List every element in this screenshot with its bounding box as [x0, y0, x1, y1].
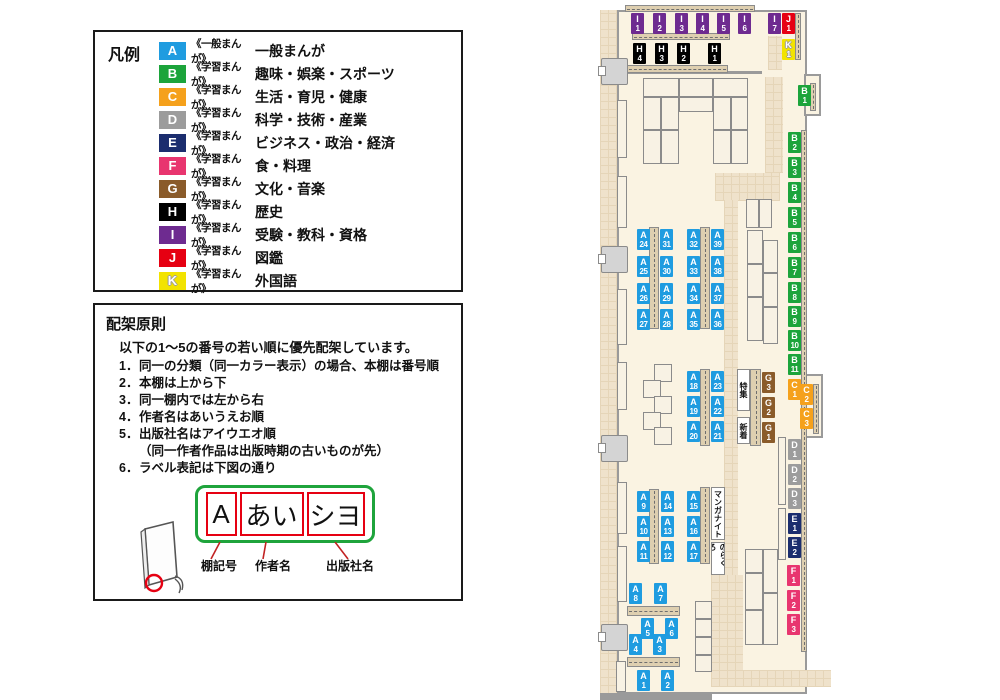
shelf-label-A10: A10: [637, 516, 650, 537]
shelf-label-number: 3: [805, 419, 809, 428]
shelf-label-F2: F2: [787, 590, 800, 611]
door: [601, 58, 628, 85]
shelf-label-letter: A: [668, 620, 675, 629]
shelf-label-letter: B: [791, 308, 798, 317]
shelf-label-number: 6: [670, 629, 674, 638]
shelf-label-letter: F: [791, 567, 797, 576]
shelf-label-H4: H4: [633, 43, 646, 64]
shelf-label-letter: A: [640, 518, 647, 527]
walkway: [724, 200, 738, 576]
shelf-label-letter: A: [640, 285, 647, 294]
shelf-label-number: 29: [663, 294, 671, 303]
shelf-label-number: 39: [714, 240, 722, 249]
shelf-label-A19: A19: [687, 396, 700, 417]
shelf-label-letter: A: [690, 518, 697, 527]
shelf-label-letter: A: [714, 231, 721, 240]
shelf-label-letter: A: [714, 258, 721, 267]
bookshelf: [617, 546, 627, 602]
shelf-label-number: 31: [663, 240, 671, 249]
shelf-label-A8: A8: [629, 583, 642, 604]
shelf-label-letter: C: [791, 381, 798, 390]
legend-chip-F: F: [159, 157, 186, 175]
shelf-label-A34: A34: [687, 283, 700, 304]
shelf-label-A32: A32: [687, 229, 700, 250]
shelf-label-number: 33: [690, 267, 698, 276]
shelf-label-letter: H: [636, 45, 643, 54]
shelf-label-letter: I: [636, 15, 639, 24]
shelf-label-letter: I: [701, 15, 704, 24]
shelf-label-letter: A: [690, 493, 697, 502]
shelf-label-letter: I: [743, 15, 746, 24]
shelf-label-A33: A33: [687, 256, 700, 277]
legend-chip-A: A: [159, 42, 186, 60]
label-author: あい: [245, 496, 297, 533]
legend-chip-G: G: [159, 180, 186, 198]
shelf-label-number: 7: [793, 268, 797, 277]
shelf-label-number: 19: [690, 407, 698, 416]
shelf-label-A21: A21: [711, 421, 724, 442]
rule-number: 1．: [119, 358, 139, 375]
legend-chip-J: J: [159, 249, 186, 267]
shelf-label-number: 12: [664, 552, 672, 561]
shelf-label-letter: D: [791, 466, 798, 475]
bookshelf: [695, 601, 712, 619]
shelf-label-letter: B: [791, 234, 798, 243]
shelf-label-A35: A35: [687, 309, 700, 330]
shelf-label-number: 1: [636, 24, 640, 33]
legend-items: A《一般まんが》一般まんがB《学習まんが》趣味・娯楽・スポーツC《学習まんが》生…: [159, 39, 395, 292]
shelf-label-C3: C3: [800, 408, 813, 429]
shelf-label-E2: E2: [788, 537, 801, 558]
shelf-label-letter: A: [714, 423, 721, 432]
shelf-label-letter: A: [640, 493, 647, 502]
walkway: [600, 10, 617, 694]
bookshelf: [661, 97, 679, 130]
shelf-label-A39: A39: [711, 229, 724, 250]
shelf-label-letter: A: [656, 636, 663, 645]
shelf-label-number: 11: [640, 552, 647, 561]
shelf-label-A30: A30: [660, 256, 673, 277]
bookshelf: [745, 610, 763, 645]
bookshelf: [763, 307, 778, 344]
shelf-label-number: 20: [690, 432, 698, 441]
bookshelf: [759, 199, 772, 228]
shelf-label-letter: A: [690, 311, 697, 320]
legend-category-label: 受験・教科・資格: [255, 225, 367, 245]
shelf-label-number: 8: [634, 594, 638, 603]
shelf-label-number: 28: [663, 320, 671, 329]
shelf-strip: [813, 384, 819, 434]
shelf-label-letter: B: [791, 184, 798, 193]
area-label-のらくろ: のらくろ: [711, 542, 725, 575]
shelf-label-F1: F1: [787, 565, 800, 586]
shelf-label-number: 5: [722, 24, 726, 33]
bookshelf: [731, 130, 748, 164]
shelf-label-H3: H3: [655, 43, 668, 64]
label-author-box: あい: [240, 492, 304, 536]
shelf-label-letter: A: [690, 231, 697, 240]
shelf-label-A28: A28: [660, 309, 673, 330]
shelf-label-number: 35: [690, 320, 698, 329]
shelf-label-A36: A36: [711, 309, 724, 330]
shelf-label-number: 1: [792, 576, 796, 585]
shelf-label-A6: A6: [665, 618, 678, 639]
shelf-label-letter: A: [664, 543, 671, 552]
legend-category-label: ビジネス・政治・経済: [255, 133, 395, 153]
shelf-label-letter: A: [640, 231, 647, 240]
page: { "colors": { "A": "#1f9ce0", "B": "#1ca…: [0, 0, 1000, 700]
bookshelf: [679, 97, 713, 112]
shelf-label-number: 10: [791, 341, 799, 350]
shelf-label-number: 4: [793, 193, 797, 202]
shelf-label-letter: B: [791, 209, 798, 218]
shelf-label-number: 37: [714, 294, 722, 303]
shelf-label-letter: A: [657, 585, 664, 594]
shelf-label-number: 34: [690, 294, 698, 303]
legend-category-label: 一般まんが: [255, 41, 325, 61]
shelf-label-B11: B11: [788, 354, 801, 375]
bookshelf: [746, 199, 759, 228]
bookshelf: [695, 619, 712, 637]
shelf-label-G1: G1: [762, 422, 775, 443]
shelf-strip: [627, 606, 680, 616]
shelf-label-B1: B1: [798, 85, 811, 106]
walkway: [711, 575, 743, 671]
shelf-label-number: 1: [793, 390, 797, 399]
shelf-label-A12: A12: [661, 541, 674, 562]
shelf-label-number: 2: [793, 548, 797, 557]
shelf-label-A14: A14: [661, 491, 674, 512]
shelf-strip: [649, 489, 659, 564]
legend-chip-H: H: [159, 203, 186, 221]
bookshelf: [654, 427, 672, 445]
bookshelf: [679, 78, 713, 97]
area-label-特集: 特集: [737, 369, 750, 411]
legend-chip-B: B: [159, 65, 186, 83]
bookshelf: [616, 661, 626, 692]
shelf-label-number: 2: [666, 681, 670, 690]
shelf-label-letter: B: [791, 284, 798, 293]
principles-title: 配架原則: [106, 313, 166, 334]
shelf-strip: [632, 33, 730, 40]
bookshelf: [713, 97, 731, 130]
legend-category-label: 趣味・娯楽・スポーツ: [255, 64, 395, 84]
shelf-label-letter: A: [640, 672, 647, 681]
shelf-label-number: 16: [690, 527, 698, 536]
label-publisher: シヨ: [309, 496, 361, 533]
shelf-label-letter: F: [791, 616, 797, 625]
label-publisher-box: シヨ: [307, 492, 365, 536]
shelf-label-number: 2: [792, 601, 796, 610]
bookshelf: [747, 264, 763, 297]
shelf-label-A3: A3: [653, 634, 666, 655]
shelf-label-C2: C2: [800, 384, 813, 405]
label-shelf-code: A: [212, 499, 229, 530]
shelf-label-A37: A37: [711, 283, 724, 304]
shelf-label-number: 15: [690, 502, 698, 511]
shelf-label-number: 1: [793, 524, 797, 533]
shelf-label-letter: A: [663, 258, 670, 267]
shelf-label-letter: A: [640, 311, 647, 320]
shelf-label-letter: A: [664, 493, 671, 502]
bookshelf: [731, 97, 748, 130]
shelf-label-letter: J: [786, 15, 791, 24]
shelf-label-D2: D2: [788, 464, 801, 485]
shelf-label-I1: I1: [631, 13, 644, 34]
shelf-label-E1: E1: [788, 513, 801, 534]
principles-rules: 1．同一の分類（同一カラー表示）の場合、本棚は番号順2．本棚は上から下3．同一棚…: [119, 358, 439, 477]
bookshelf: [713, 78, 748, 97]
door: [601, 246, 628, 273]
walkway: [711, 670, 831, 687]
shelf-label-number: 30: [663, 267, 671, 276]
shelf-label-number: 2: [805, 395, 809, 404]
rule-number: 6．: [119, 460, 139, 477]
shelf-label-A22: A22: [711, 396, 724, 417]
shelf-label-B8: B8: [788, 282, 801, 303]
shelf-label-H1: H1: [708, 43, 721, 64]
caption-shelf-code: 棚記号: [201, 557, 237, 574]
shelf-label-H2: H2: [677, 43, 690, 64]
shelf-label-number: 36: [714, 320, 722, 329]
rule-5: 5．出版社名はアイウエオ順（同一作者作品は出版時期の古いものが先）: [119, 426, 439, 460]
shelf-label-I7: I7: [768, 13, 781, 34]
shelf-label-number: 3: [792, 625, 796, 634]
shelf-label-A4: A4: [629, 634, 642, 655]
shelf-strip: [700, 227, 710, 329]
shelf-label-B5: B5: [788, 207, 801, 228]
shelf-label-A26: A26: [637, 283, 650, 304]
shelf-strip: [795, 13, 801, 60]
shelf-label-A27: A27: [637, 309, 650, 330]
rule-text: 出版社名はアイウエオ順（同一作者作品は出版時期の古いものが先）: [139, 426, 389, 460]
legend-category-label: 科学・技術・産業: [255, 110, 367, 130]
shelf-strip: [649, 227, 659, 329]
shelf-strip: [750, 369, 761, 446]
shelf-label-letter: D: [791, 490, 798, 499]
shelf-label-letter: A: [690, 373, 697, 382]
shelf-label-A38: A38: [711, 256, 724, 277]
shelf-label-letter: A: [690, 543, 697, 552]
shelf-label-A17: A17: [687, 541, 700, 562]
shelf-label-letter: E: [791, 539, 797, 548]
shelf-label-letter: H: [680, 45, 687, 54]
shelf-label-letter: A: [690, 285, 697, 294]
legend-category-label: 文化・音楽: [255, 179, 325, 199]
shelf-label-number: 1: [787, 50, 791, 59]
shelf-label-I2: I2: [653, 13, 666, 34]
shelf-label-number: 1: [642, 681, 646, 690]
shelf-label-number: 11: [791, 365, 798, 374]
shelf-label-I5: I5: [717, 13, 730, 34]
shelf-label-number: 18: [690, 382, 698, 391]
shelf-label-number: 14: [664, 502, 672, 511]
shelf-label-letter: A: [714, 398, 721, 407]
shelf-label-number: 5: [793, 218, 797, 227]
shelf-label-letter: B: [791, 259, 798, 268]
shelf-label-number: 9: [642, 502, 646, 511]
shelf-strip: [700, 487, 710, 564]
shelf-label-number: 1: [767, 433, 771, 442]
bookshelf: [763, 240, 778, 273]
shelf-strip: [622, 65, 728, 73]
shelf-label-letter: A: [644, 620, 651, 629]
legend-category-label: 食・料理: [255, 156, 311, 176]
shelf-label-A29: A29: [660, 283, 673, 304]
door: [601, 435, 628, 462]
shelf-label-A31: A31: [660, 229, 673, 250]
shelf-label-letter: B: [791, 356, 798, 365]
legend-category-label: 外国語: [255, 271, 297, 291]
shelf-label-letter: A: [714, 285, 721, 294]
shelf-label-A13: A13: [661, 516, 674, 537]
bookshelf: [643, 78, 679, 97]
shelf-label-I4: I4: [696, 13, 709, 34]
shelf-label-number: 1: [713, 54, 717, 63]
shelf-label-A1: A1: [637, 670, 650, 691]
principles-intro: 以下の1～5の番号の若い順に優先配架しています。: [119, 337, 418, 356]
shelf-label-A23: A23: [711, 371, 724, 392]
rule-text: 本棚は上から下: [139, 375, 227, 392]
shelf-label-number: 25: [640, 267, 648, 276]
shelf-label-letter: B: [791, 134, 798, 143]
shelf-label-letter: I: [773, 15, 776, 24]
legend-category-label: 図鑑: [255, 248, 283, 268]
shelf-label-letter: I: [658, 15, 661, 24]
shelf-label-letter: H: [658, 45, 665, 54]
shelf-label-F3: F3: [787, 614, 800, 635]
shelf-label-number: 5: [646, 629, 650, 638]
shelf-label-number: 3: [658, 645, 662, 654]
area-label-マンガナイト: マンガナイト: [711, 487, 725, 540]
shelf-label-A11: A11: [637, 541, 650, 562]
shelf-label-letter: F: [791, 592, 797, 601]
shelf-label-letter: I: [722, 15, 725, 24]
shelf-label-A18: A18: [687, 371, 700, 392]
shelf-label-A2: A2: [661, 670, 674, 691]
legend-chip-D: D: [159, 111, 186, 129]
shelf-label-letter: C: [803, 386, 810, 395]
shelf-label-letter: A: [632, 636, 639, 645]
shelf-label-letter: A: [640, 258, 647, 267]
label-format-diagram: A あい シヨ: [195, 485, 375, 543]
shelf-label-number: 3: [793, 168, 797, 177]
legend-chip-E: E: [159, 134, 186, 152]
shelf-label-number: 7: [659, 594, 663, 603]
shelf-label-A9: A9: [637, 491, 650, 512]
shelf-label-number: 3: [660, 54, 664, 63]
label-shelf-code-box: A: [206, 492, 237, 536]
legend-category-label: 歴史: [255, 202, 283, 222]
shelf-label-letter: A: [664, 518, 671, 527]
legend-title: 凡例: [108, 41, 140, 65]
shelf-label-A7: A7: [654, 583, 667, 604]
shelf-label-number: 27: [640, 320, 648, 329]
bookshelf: [763, 549, 778, 593]
bookshelf: [617, 289, 627, 345]
bookshelf: [695, 637, 712, 655]
bookshelf: [745, 573, 763, 610]
bookshelf: [747, 297, 763, 341]
shelf-label-number: 7: [773, 24, 777, 33]
legend-chip-K: K: [159, 272, 186, 290]
shelf-label-number: 32: [690, 240, 698, 249]
shelf-label-number: 1: [787, 24, 791, 33]
rule-3: 3．同一棚内では左から右: [119, 392, 439, 409]
shelf-label-number: 2: [793, 475, 797, 484]
legend-chip-C: C: [159, 88, 186, 106]
shelf-label-D3: D3: [788, 488, 801, 509]
shelf-label-K1: K1: [782, 39, 795, 60]
shelf-label-number: 3: [680, 24, 684, 33]
shelf-label-letter: A: [663, 285, 670, 294]
bookshelf: [763, 273, 778, 307]
rule-6: 6．ラベル表記は下図の通り: [119, 460, 439, 477]
bookshelf: [763, 593, 778, 645]
bookshelf: [695, 655, 712, 672]
shelf-label-J1: J1: [782, 13, 795, 34]
shelf-label-number: 6: [793, 243, 797, 252]
rule-number: 5．: [119, 426, 139, 460]
shelf-label-letter: B: [791, 332, 798, 341]
shelf-label-A15: A15: [687, 491, 700, 512]
shelf-label-letter: C: [803, 410, 810, 419]
shelf-label-B3: B3: [788, 157, 801, 178]
shelf-label-number: 3: [793, 499, 797, 508]
legend-scope: 《学習まんが》: [191, 266, 255, 296]
shelf-label-letter: A: [664, 672, 671, 681]
shelf-label-letter: A: [640, 543, 647, 552]
shelf-label-letter: H: [711, 45, 718, 54]
book-icon: [133, 515, 193, 597]
bookshelf: [747, 230, 763, 264]
shelf-label-number: 6: [743, 24, 747, 33]
rule-number: 4．: [119, 409, 139, 426]
bookshelf: [617, 100, 627, 158]
bookshelf: [745, 549, 763, 573]
shelf-label-letter: G: [765, 374, 772, 383]
shelf-label-letter: A: [690, 398, 697, 407]
shelf-label-number: 10: [640, 527, 648, 536]
shelf-label-D1: D1: [788, 439, 801, 460]
shelf-label-number: 9: [793, 317, 797, 326]
caption-author: 作者名: [255, 557, 291, 574]
rule-number: 3．: [119, 392, 139, 409]
walkway: [765, 77, 783, 173]
shelf-label-B9: B9: [788, 306, 801, 327]
rule-1: 1．同一の分類（同一カラー表示）の場合、本棚は番号順: [119, 358, 439, 375]
shelf-label-number: 2: [767, 408, 771, 417]
walkway: [768, 36, 782, 70]
caption-publisher: 出版社名: [326, 557, 374, 574]
rule-number: 2．: [119, 375, 139, 392]
rule-text: 作者名はあいうえお順: [139, 409, 264, 426]
area-label-新着: 新着: [737, 417, 750, 444]
shelf-label-letter: B: [791, 159, 798, 168]
bookshelf: [617, 362, 627, 410]
rule-text: 同一棚内では左から右: [139, 392, 264, 409]
shelf-label-A16: A16: [687, 516, 700, 537]
rule-text: 同一の分類（同一カラー表示）の場合、本棚は番号順: [139, 358, 439, 375]
shelf-label-G2: G2: [762, 397, 775, 418]
shelf-label-letter: A: [663, 311, 670, 320]
shelf-label-number: 1: [793, 450, 797, 459]
shelf-label-number: 8: [793, 293, 797, 302]
shelf-label-B7: B7: [788, 257, 801, 278]
shelf-label-number: 2: [793, 143, 797, 152]
rule-4: 4．作者名はあいうえお順: [119, 409, 439, 426]
shelf-label-A25: A25: [637, 256, 650, 277]
